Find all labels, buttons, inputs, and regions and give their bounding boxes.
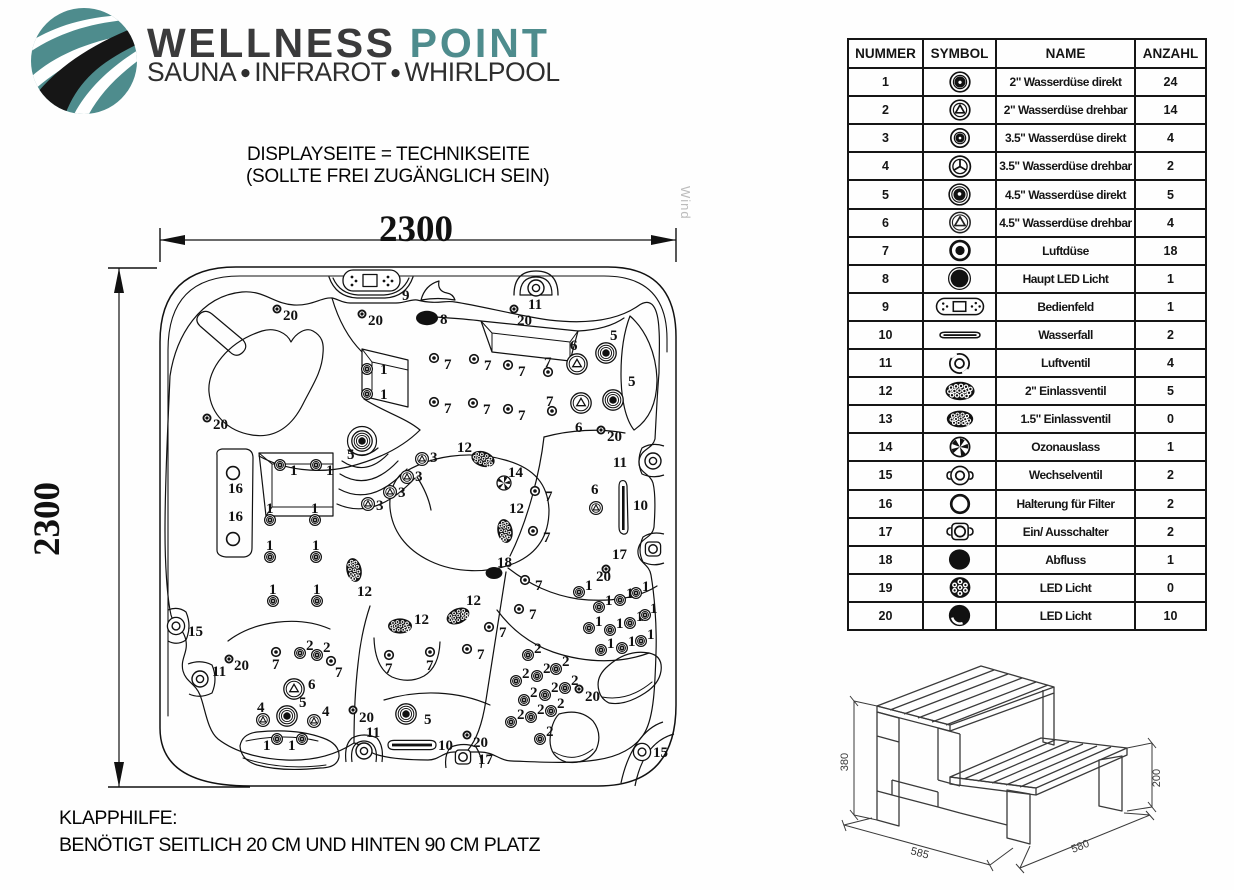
- svg-text:2: 2: [551, 680, 559, 696]
- svg-text:7: 7: [444, 357, 452, 373]
- svg-text:2: 2: [530, 685, 538, 701]
- svg-text:11: 11: [528, 297, 542, 313]
- svg-text:11: 11: [212, 664, 226, 680]
- svg-text:1: 1: [269, 582, 277, 598]
- svg-text:200: 200: [1151, 769, 1163, 787]
- svg-text:380: 380: [839, 753, 851, 771]
- svg-text:18: 18: [497, 555, 512, 571]
- svg-text:3: 3: [430, 450, 438, 466]
- svg-text:7: 7: [544, 355, 552, 371]
- svg-text:2300: 2300: [27, 482, 68, 556]
- svg-text:6: 6: [570, 338, 578, 354]
- svg-text:11: 11: [366, 725, 380, 741]
- svg-text:2: 2: [546, 724, 554, 740]
- svg-text:20: 20: [517, 313, 532, 329]
- svg-text:1: 1: [595, 614, 603, 630]
- svg-text:15: 15: [188, 624, 203, 640]
- svg-text:7: 7: [546, 394, 554, 410]
- svg-text:3: 3: [376, 498, 384, 514]
- svg-text:2: 2: [517, 707, 525, 723]
- svg-text:2: 2: [562, 654, 570, 670]
- svg-text:1: 1: [607, 636, 615, 652]
- svg-text:20: 20: [213, 417, 228, 433]
- svg-text:20: 20: [368, 313, 383, 329]
- svg-text:1: 1: [313, 582, 321, 598]
- svg-text:6: 6: [575, 420, 583, 436]
- svg-text:10: 10: [438, 738, 453, 754]
- svg-text:1: 1: [266, 538, 274, 554]
- svg-text:2: 2: [557, 696, 565, 712]
- svg-text:7: 7: [545, 489, 553, 505]
- svg-text:7: 7: [529, 607, 537, 623]
- svg-text:7: 7: [518, 364, 526, 380]
- svg-text:4: 4: [322, 704, 330, 720]
- svg-text:1: 1: [290, 463, 298, 479]
- svg-text:1: 1: [311, 501, 319, 517]
- svg-text:1: 1: [628, 634, 636, 650]
- svg-text:7: 7: [335, 665, 343, 681]
- svg-text:2: 2: [534, 641, 542, 657]
- svg-text:1: 1: [266, 501, 274, 517]
- svg-text:20: 20: [234, 658, 249, 674]
- svg-text:12: 12: [357, 584, 372, 600]
- svg-text:7: 7: [543, 530, 551, 546]
- svg-text:1: 1: [647, 627, 655, 643]
- svg-text:17: 17: [478, 752, 494, 768]
- svg-text:14: 14: [508, 465, 524, 481]
- svg-text:1: 1: [585, 578, 593, 594]
- svg-text:16: 16: [228, 481, 244, 497]
- svg-text:20: 20: [473, 735, 488, 751]
- svg-text:7: 7: [484, 358, 492, 374]
- svg-text:7: 7: [535, 578, 543, 594]
- svg-text:5: 5: [347, 447, 355, 463]
- svg-text:7: 7: [444, 401, 452, 417]
- svg-text:17: 17: [612, 547, 628, 563]
- svg-text:12: 12: [414, 612, 429, 628]
- svg-text:3: 3: [398, 485, 406, 501]
- svg-text:20: 20: [607, 429, 622, 445]
- svg-text:12: 12: [509, 501, 524, 517]
- svg-text:12: 12: [466, 593, 481, 609]
- svg-text:2: 2: [571, 673, 579, 689]
- svg-text:2: 2: [537, 702, 545, 718]
- svg-text:6: 6: [591, 482, 599, 498]
- svg-text:1: 1: [616, 616, 624, 632]
- svg-text:4: 4: [257, 700, 265, 716]
- svg-text:7: 7: [272, 657, 280, 673]
- svg-text:16: 16: [228, 509, 244, 525]
- svg-text:20: 20: [283, 308, 298, 324]
- svg-text:1: 1: [650, 601, 658, 617]
- svg-text:10: 10: [633, 498, 648, 514]
- svg-text:8: 8: [440, 312, 448, 328]
- svg-text:7: 7: [518, 408, 526, 424]
- svg-text:1: 1: [263, 738, 271, 754]
- svg-text:6: 6: [308, 677, 316, 693]
- svg-text:7: 7: [426, 658, 434, 674]
- svg-text:20: 20: [359, 710, 374, 726]
- svg-text:5: 5: [628, 374, 636, 390]
- svg-text:2300: 2300: [379, 209, 453, 250]
- svg-text:2: 2: [323, 640, 331, 656]
- svg-text:1: 1: [642, 579, 650, 595]
- svg-text:7: 7: [477, 647, 485, 663]
- svg-text:7: 7: [385, 661, 393, 677]
- svg-text:20: 20: [596, 569, 611, 585]
- svg-text:1: 1: [605, 593, 613, 609]
- svg-text:15: 15: [653, 745, 668, 761]
- svg-text:5: 5: [610, 328, 618, 344]
- svg-text:5: 5: [424, 712, 432, 728]
- svg-text:1: 1: [380, 362, 388, 378]
- svg-text:20: 20: [585, 689, 600, 705]
- svg-text:12: 12: [457, 440, 472, 456]
- svg-text:5: 5: [299, 695, 307, 711]
- svg-text:9: 9: [402, 288, 410, 304]
- svg-text:1: 1: [288, 738, 296, 754]
- svg-text:1: 1: [380, 387, 388, 403]
- svg-text:1: 1: [312, 538, 320, 554]
- svg-text:7: 7: [499, 625, 507, 641]
- svg-text:11: 11: [613, 455, 627, 471]
- svg-text:1: 1: [326, 463, 334, 479]
- svg-text:2: 2: [543, 661, 551, 677]
- svg-text:2: 2: [522, 666, 530, 682]
- svg-text:7: 7: [483, 402, 491, 418]
- svg-text:3: 3: [415, 469, 423, 485]
